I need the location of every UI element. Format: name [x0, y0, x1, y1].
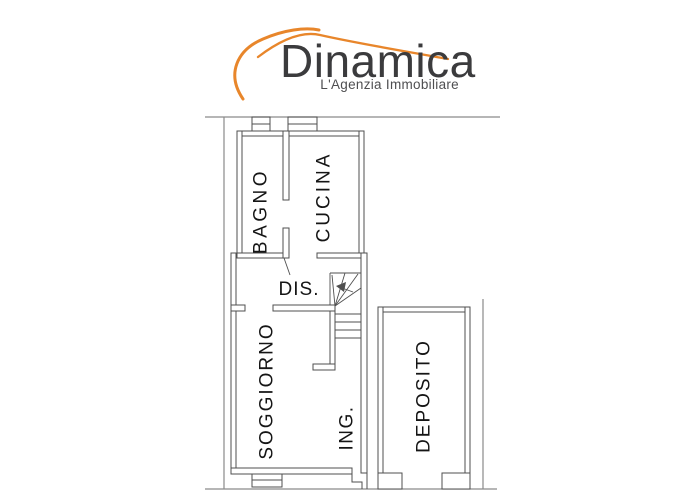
wall-lower-left: [231, 253, 236, 473]
room-label-bagno: BAGNO: [251, 168, 272, 254]
window-soggiorno: [252, 474, 282, 487]
room-label-ing: ING.: [337, 405, 358, 450]
wall-deposito-right: [465, 307, 470, 473]
wall-dis-soggiorno: [273, 305, 335, 311]
wall-soggiorno-stair-foot: [313, 364, 335, 370]
wall-bagno-cucina-divider-top: [283, 131, 289, 200]
wall-deposito-left: [378, 307, 383, 473]
wall-lower-right: [361, 253, 367, 473]
floor-plan-svg: Dinamica L'Agenzia Immobiliare: [0, 0, 700, 500]
wall-upper-left: [237, 131, 242, 258]
logo-subtitle: L'Agenzia Immobiliare: [320, 77, 459, 92]
agency-logo: Dinamica L'Agenzia Immobiliare: [235, 29, 476, 99]
room-label-cucina: CUCINA: [314, 152, 335, 243]
floorplan-page: Dinamica L'Agenzia Immobiliare: [0, 0, 700, 500]
room-label-soggiorno: SOGGIORNO: [257, 322, 278, 459]
wall-deposito-foot-right: [442, 473, 470, 489]
wall-entry-notch: [352, 474, 362, 489]
wall-upper-right: [359, 131, 364, 258]
stair-winder-line: [335, 288, 361, 306]
wall-bottom: [231, 468, 352, 474]
stair-winder-line: [332, 275, 335, 306]
wall-cucina-bottom: [317, 253, 364, 258]
arrow-head: [336, 282, 346, 292]
door-leaf: [284, 258, 290, 275]
room-label-deposito: DEPOSITO: [414, 339, 435, 453]
stair-direction-arrow-icon: [336, 282, 353, 292]
wall-soggiorno-stair: [330, 311, 335, 370]
wall-soggiorno-door-jamb: [231, 305, 245, 311]
wall-top: [237, 131, 364, 136]
wall-deposito-top: [378, 307, 470, 312]
wall-deposito-foot-left: [378, 473, 402, 489]
wall-bagno-cucina-divider-bottom: [283, 228, 289, 258]
room-label-dis: DIS.: [279, 279, 320, 300]
